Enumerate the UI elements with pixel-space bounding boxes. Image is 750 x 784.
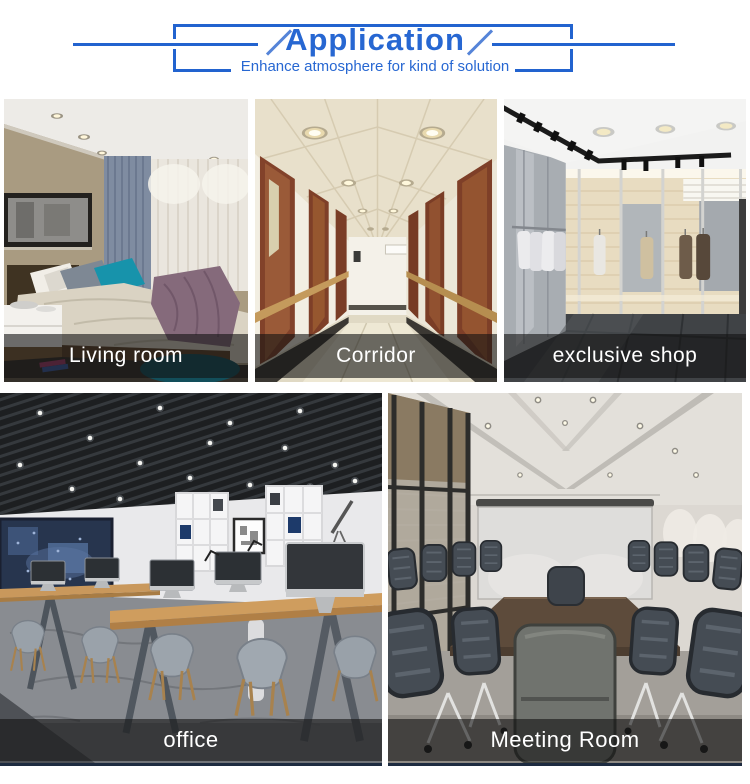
photo-card-office: office <box>0 393 382 766</box>
photo-card-meeting-room: Meeting Room <box>388 393 742 766</box>
photo-caption: exclusive shop <box>504 334 746 378</box>
photo-caption: Living room <box>4 334 248 378</box>
section-title: Application <box>0 22 750 58</box>
gallery-row-top: Living room <box>0 99 750 382</box>
photo-card-living-room: Living room <box>4 99 248 382</box>
section-header: Application Enhance atmosphere for kind … <box>0 0 750 99</box>
application-section: Application Enhance atmosphere for kind … <box>0 0 750 784</box>
photo-card-corridor: Corridor <box>255 99 497 382</box>
photo-caption: Corridor <box>255 334 497 378</box>
photo-caption: Meeting Room <box>388 719 742 761</box>
photo-card-exclusive-shop: exclusive shop <box>504 99 746 382</box>
office-photo <box>0 393 382 763</box>
photo-caption: office <box>0 719 382 761</box>
section-subtitle: Enhance atmosphere for kind of solution <box>0 58 750 75</box>
gallery-row-bottom: office <box>0 393 750 766</box>
meeting-room-photo <box>388 393 742 763</box>
